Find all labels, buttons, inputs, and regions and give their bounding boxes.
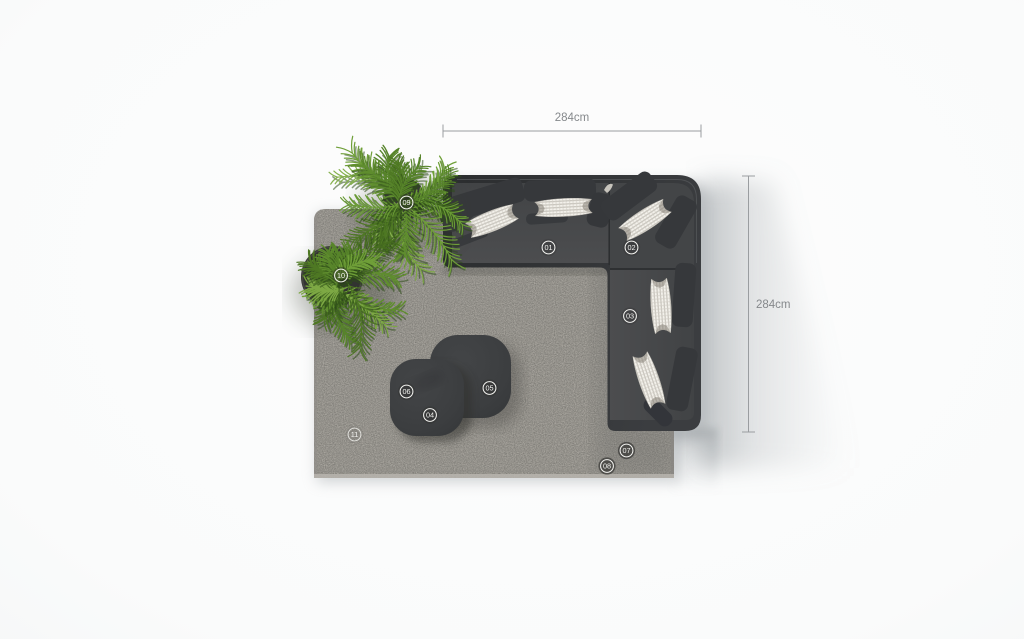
svg-text:05: 05 [485,384,493,393]
svg-text:06: 06 [402,387,410,396]
svg-text:09: 09 [402,198,410,207]
svg-text:07: 07 [622,446,630,455]
svg-text:284cm: 284cm [756,299,791,311]
svg-text:02: 02 [627,243,635,252]
svg-text:08: 08 [603,462,611,471]
svg-text:10: 10 [337,271,345,280]
svg-text:284cm: 284cm [555,112,590,124]
svg-text:04: 04 [426,411,434,420]
svg-text:03: 03 [626,312,634,321]
svg-text:11: 11 [351,430,359,439]
svg-text:01: 01 [544,243,552,252]
